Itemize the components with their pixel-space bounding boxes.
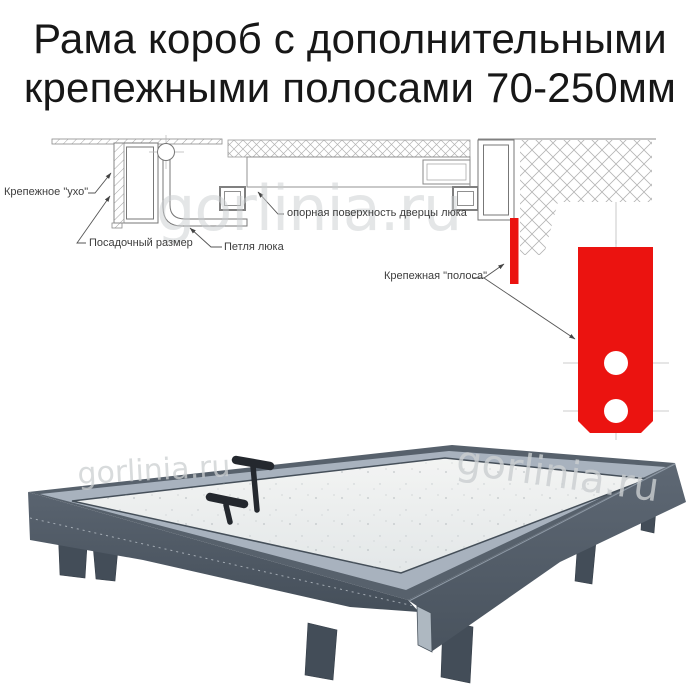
title-line-2: крепежными полосами 70-250мм xyxy=(0,63,700,112)
hinge-pivot xyxy=(158,144,175,161)
product-photo: gorlinia.ru gorlinia.ru xyxy=(0,440,700,700)
fastening-strip-detail xyxy=(563,240,669,440)
strip-hole-top xyxy=(604,351,628,375)
label-hatch-hinge: Петля люка xyxy=(224,241,284,254)
page-title: Рама короб с дополнительными крепежными … xyxy=(0,14,700,112)
product-card: Рама короб с дополнительными крепежными … xyxy=(0,0,700,700)
title-line-1: Рама короб с дополнительными xyxy=(0,14,700,63)
frame-right-profile xyxy=(478,140,514,220)
label-mounting-ear: Крепежное "ухо" xyxy=(4,186,88,199)
front-handle-stem xyxy=(226,505,230,522)
label-mounting-size: Посадочный размер xyxy=(89,237,193,250)
technical-diagram: gorlinia.ru Крепежное "ухо" Посадочный р… xyxy=(0,122,700,440)
diagram-drawing: gorlinia.ru xyxy=(0,122,700,440)
mounting-ear xyxy=(114,143,124,223)
leg-3 xyxy=(305,623,337,680)
frame-channel-end xyxy=(417,606,432,652)
label-support-surface: опорная поверхность дверцы люка xyxy=(287,207,467,220)
strip-hole-bottom xyxy=(604,399,628,423)
fastening-strip-red xyxy=(510,218,519,284)
photo-drawing: gorlinia.ru gorlinia.ru xyxy=(0,440,700,700)
label-fastening-strip: Крепежная "полоса" xyxy=(384,270,487,283)
